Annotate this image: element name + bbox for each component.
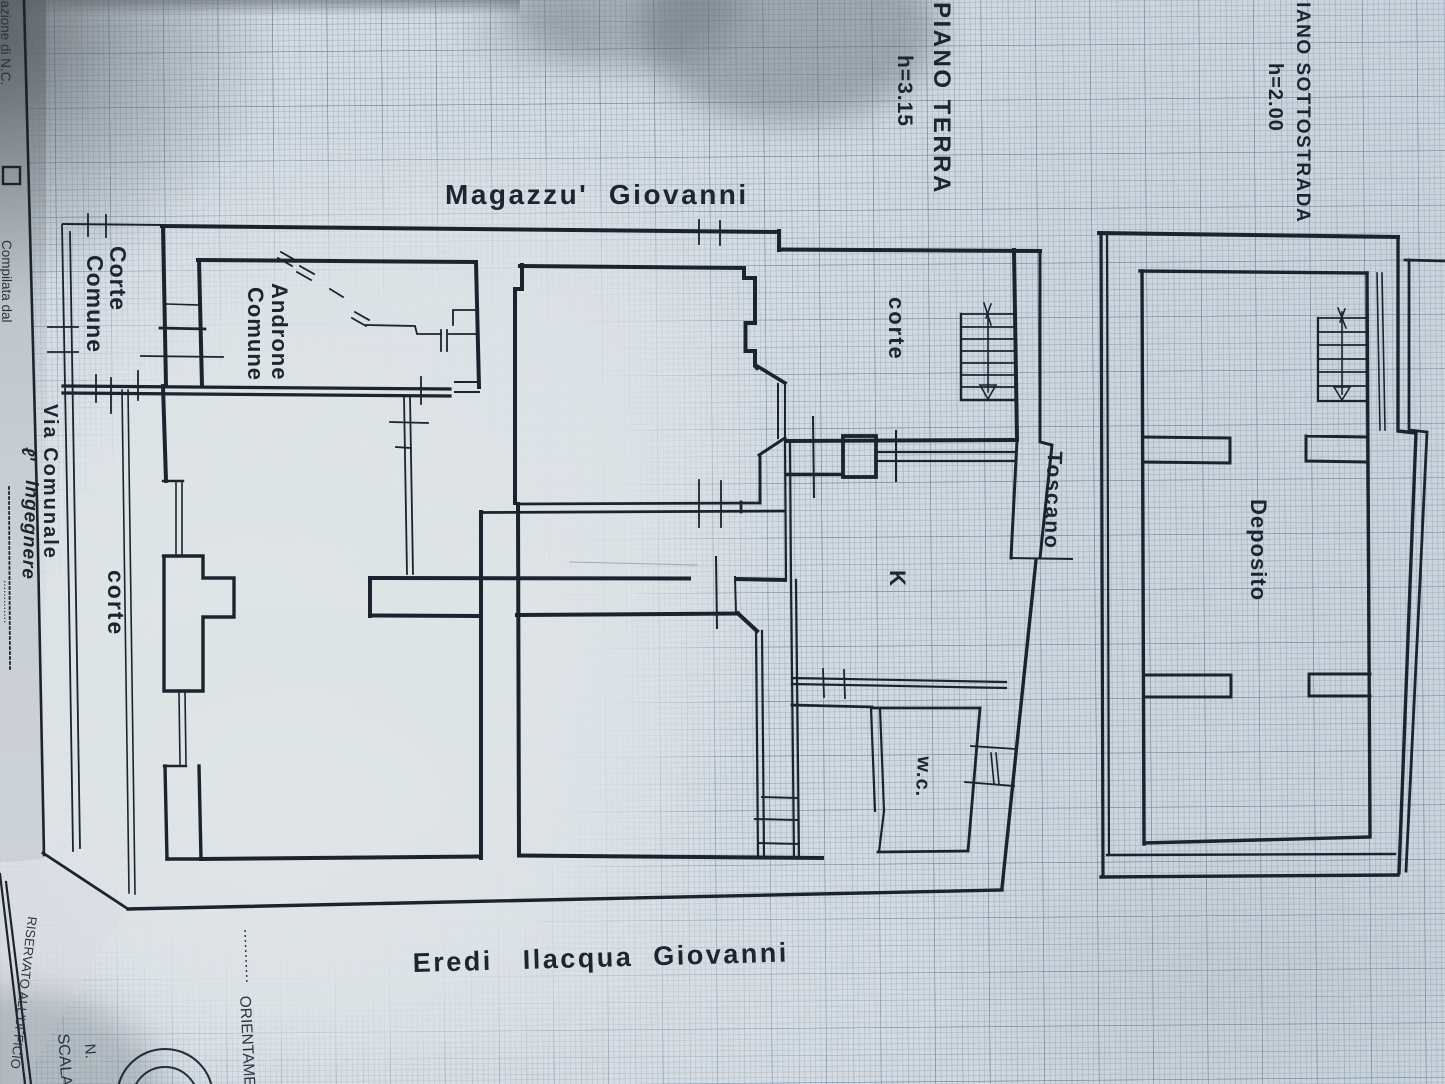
svg-text:Compilata dal: Compilata dal bbox=[0, 240, 14, 323]
svg-text:Ingegnere: Ingegnere bbox=[18, 480, 42, 580]
svg-text:N.: N. bbox=[81, 1043, 99, 1059]
svg-text:Deposito: Deposito bbox=[1246, 499, 1271, 601]
svg-text:PIANO SOTTOSTRADA: PIANO SOTTOSTRADA bbox=[1292, 0, 1313, 223]
svg-text:h=2.00: h=2.00 bbox=[1264, 63, 1286, 132]
svg-text:w.c.: w.c. bbox=[911, 755, 935, 798]
svg-text:SCALA: SCALA bbox=[54, 1033, 75, 1084]
svg-text:h=3.15: h=3.15 bbox=[893, 55, 916, 127]
svg-text:Magazzu' Giovanni: Magazzu' Giovanni bbox=[445, 179, 749, 210]
svg-text:Comune: Comune bbox=[82, 255, 108, 353]
svg-text:Toscano: Toscano bbox=[1040, 451, 1066, 551]
svg-text:ℓ': ℓ' bbox=[18, 447, 38, 461]
svg-text:corte: corte bbox=[884, 297, 909, 361]
svg-text:Comune: Comune bbox=[243, 287, 268, 381]
svg-text:K: K bbox=[885, 570, 910, 586]
svg-text:razione di N.C.: razione di N.C. bbox=[0, 0, 13, 85]
svg-text:Androne: Androne bbox=[267, 283, 292, 380]
svg-text:corte: corte bbox=[103, 570, 129, 636]
svg-text:.............: ............. bbox=[1, 580, 15, 623]
svg-text:PIANO TERRA: PIANO TERRA bbox=[928, 2, 955, 195]
